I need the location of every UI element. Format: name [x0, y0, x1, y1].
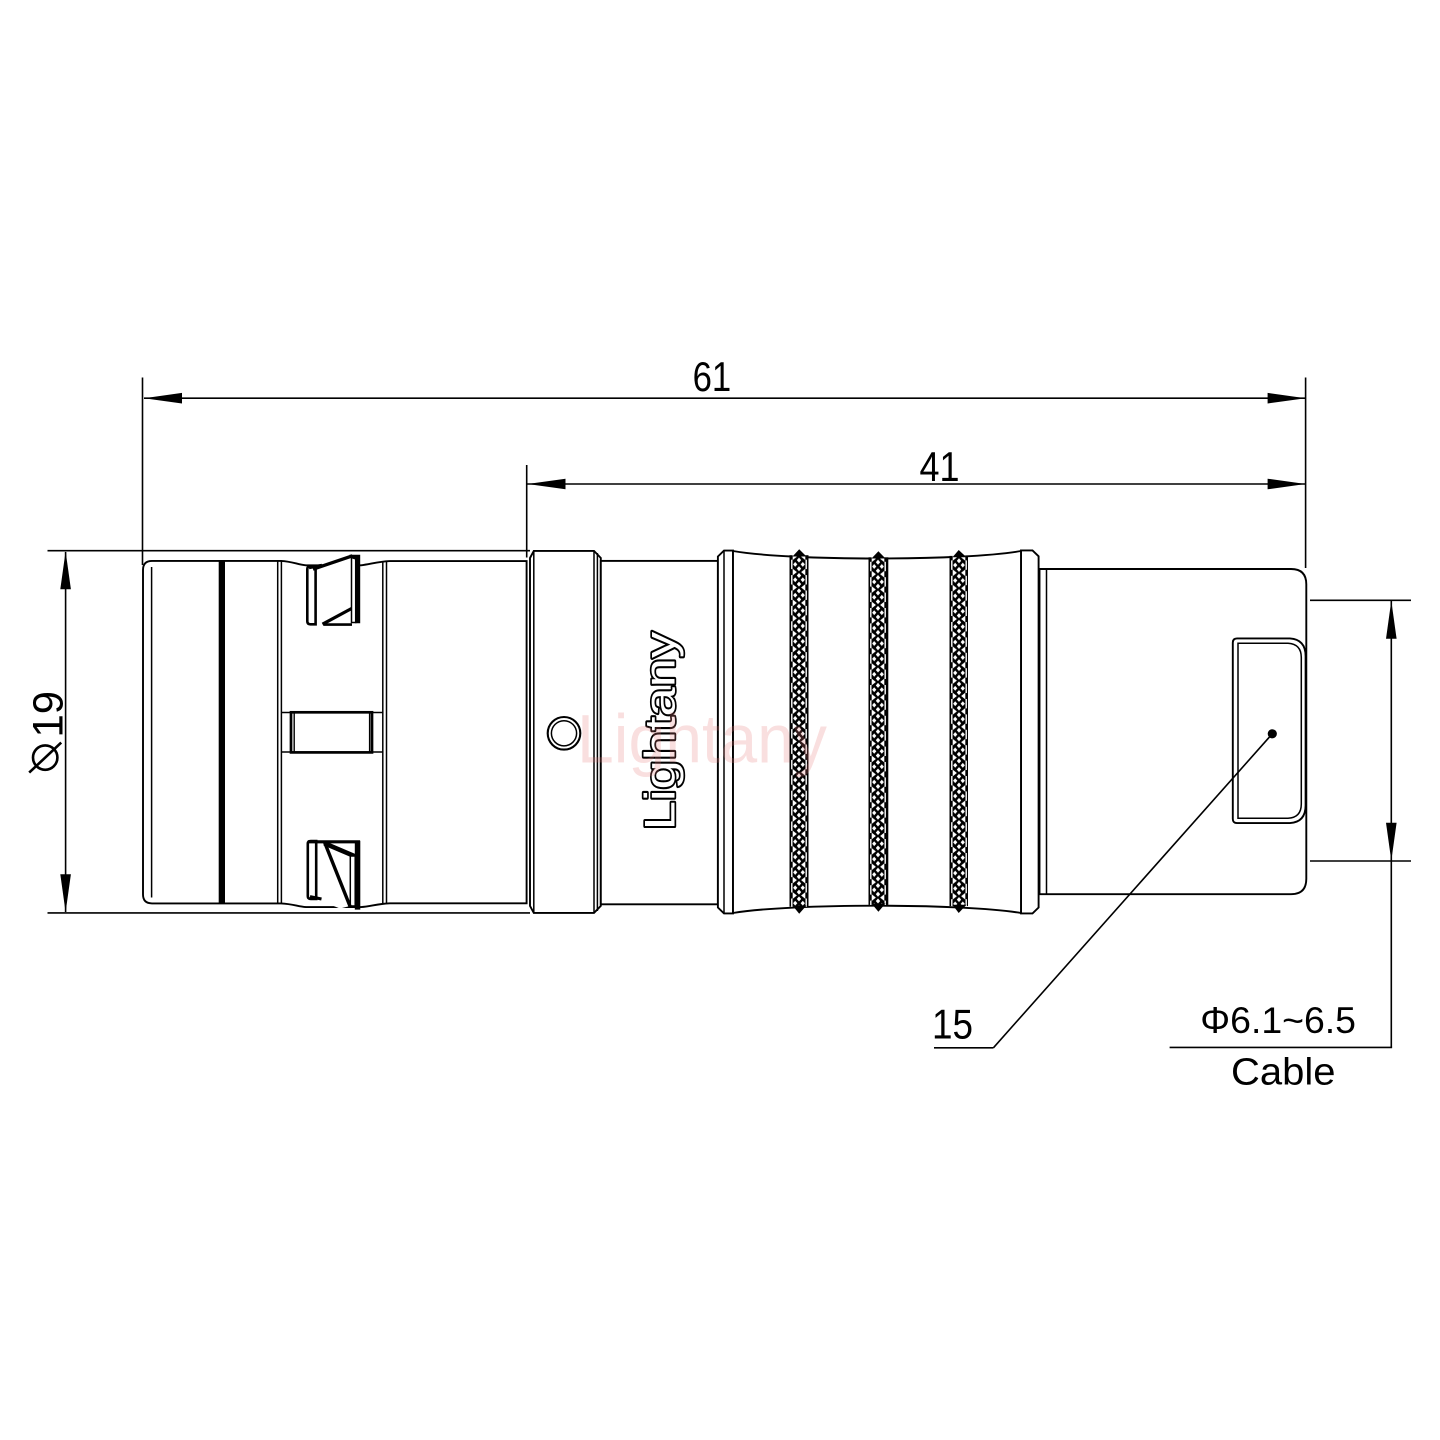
svg-text:61: 61 — [693, 353, 732, 400]
svg-text:19: 19 — [25, 691, 73, 738]
svg-text:Lightany: Lightany — [577, 700, 828, 777]
svg-text:Φ6.1~6.5: Φ6.1~6.5 — [1200, 999, 1356, 1041]
svg-text:15: 15 — [932, 1000, 973, 1047]
svg-text:41: 41 — [920, 443, 960, 490]
svg-text:Cable: Cable — [1231, 1052, 1336, 1094]
